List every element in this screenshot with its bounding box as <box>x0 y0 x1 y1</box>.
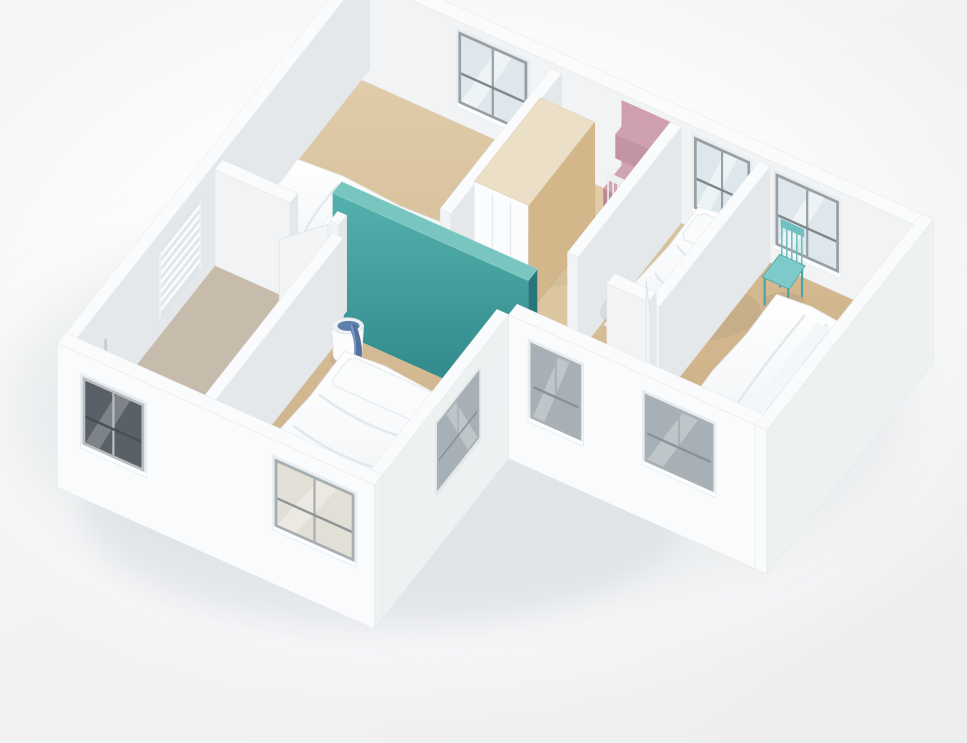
isometric-floor-plan <box>0 0 967 743</box>
floor-plan-render <box>0 0 967 743</box>
